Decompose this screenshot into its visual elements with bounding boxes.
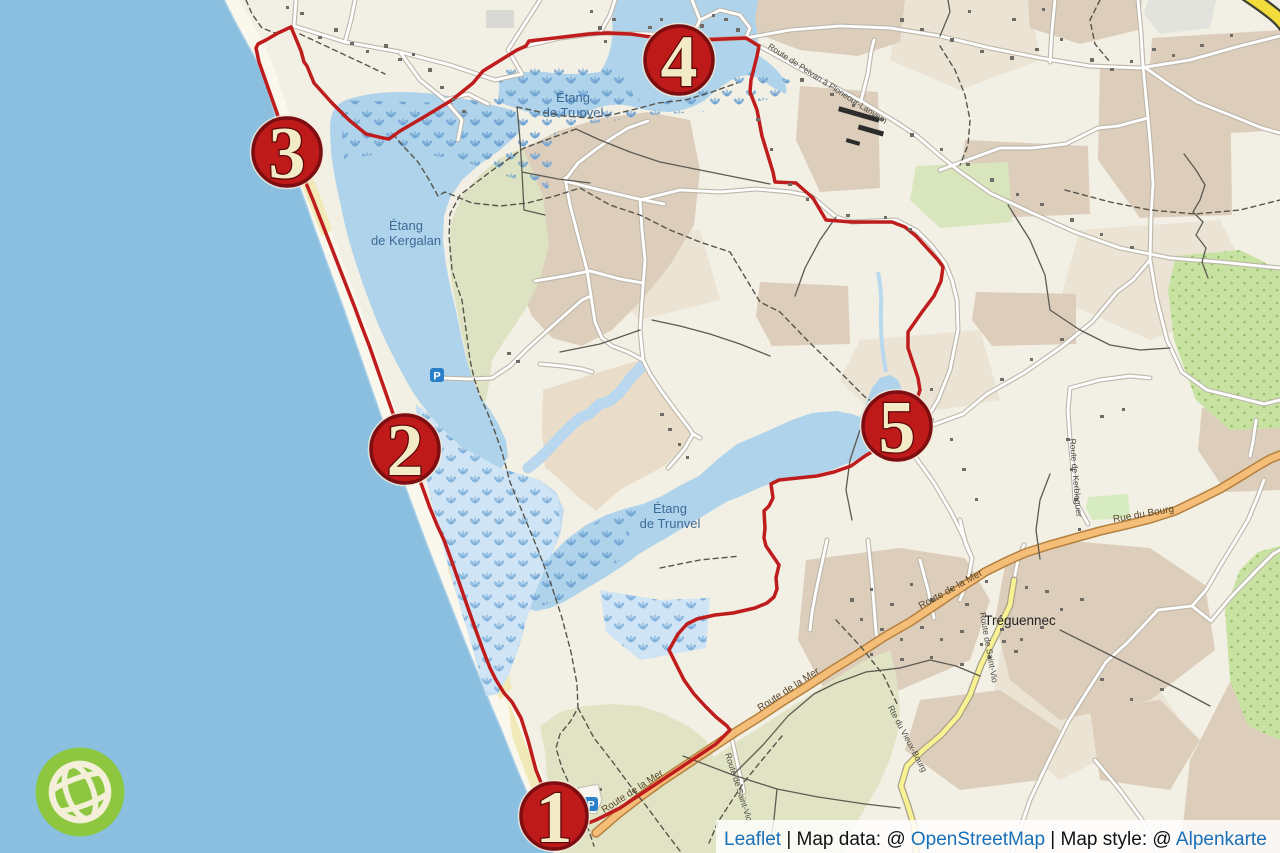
svg-text:4: 4 [661,21,698,103]
svg-text:1: 1 [536,777,573,853]
svg-text:de Kergalan: de Kergalan [371,233,441,248]
svg-text:Étang: Étang [389,218,423,233]
svg-text:Tréguennec: Tréguennec [984,613,1056,628]
svg-text:Leaflet | Map data: @ OpenStre: Leaflet | Map data: @ OpenStreetMap | Ma… [724,829,1267,850]
svg-text:2: 2 [387,410,424,492]
svg-text:5: 5 [879,387,916,469]
svg-text:de Trunvel: de Trunvel [543,105,604,120]
svg-text:P: P [433,371,440,383]
svg-text:3: 3 [269,113,306,195]
svg-text:de Trunvel: de Trunvel [640,516,701,531]
svg-text:Étang: Étang [653,501,687,516]
svg-text:Étang: Étang [556,90,590,105]
